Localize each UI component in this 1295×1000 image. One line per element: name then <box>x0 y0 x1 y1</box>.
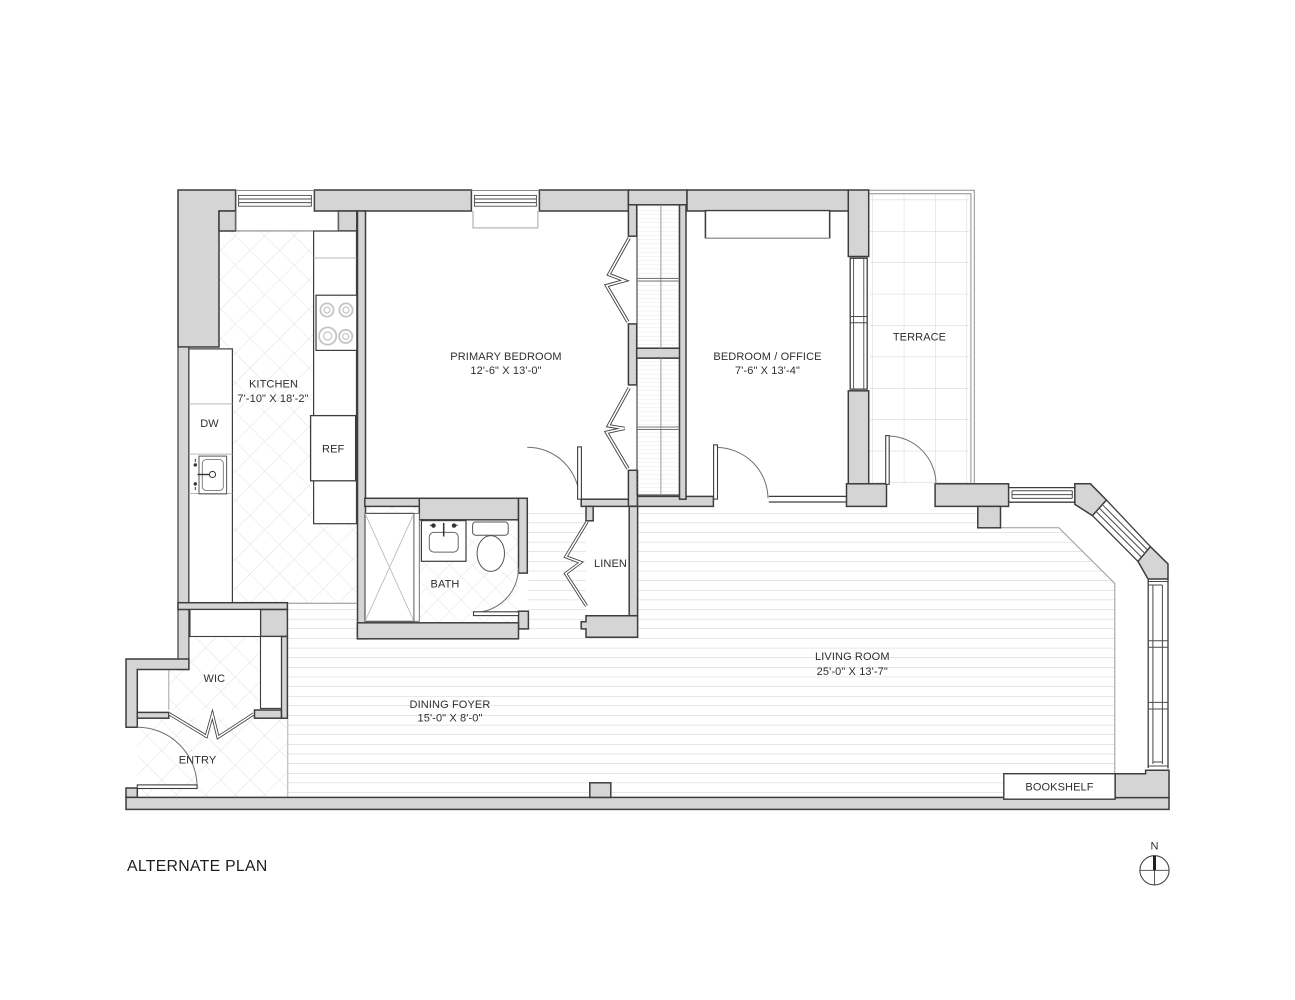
svg-text:ENTRY: ENTRY <box>179 755 217 767</box>
svg-text:N: N <box>1150 841 1158 853</box>
svg-text:7'-10" X 18'-2": 7'-10" X 18'-2" <box>237 393 308 405</box>
svg-text:ALTERNATE PLAN: ALTERNATE PLAN <box>127 858 268 875</box>
svg-text:KITCHEN: KITCHEN <box>249 379 298 391</box>
svg-text:WIC: WIC <box>204 673 226 685</box>
svg-text:DINING FOYER: DINING FOYER <box>410 699 491 711</box>
svg-text:PRIMARY BEDROOM: PRIMARY BEDROOM <box>450 351 561 363</box>
svg-text:LIVING ROOM: LIVING ROOM <box>815 651 890 663</box>
svg-text:LINEN: LINEN <box>594 558 627 570</box>
svg-text:BEDROOM / OFFICE: BEDROOM / OFFICE <box>713 351 821 363</box>
svg-text:15'-0" X 8'-0": 15'-0" X 8'-0" <box>417 712 482 724</box>
svg-text:12'-6" X 13'-0": 12'-6" X 13'-0" <box>470 365 541 377</box>
svg-text:REF: REF <box>322 443 344 455</box>
svg-text:25'-0" X 13'-7": 25'-0" X 13'-7" <box>817 666 888 678</box>
svg-text:BATH: BATH <box>430 578 459 590</box>
svg-text:7'-6" X 13'-4": 7'-6" X 13'-4" <box>735 365 800 377</box>
svg-text:DW: DW <box>200 418 219 430</box>
svg-text:BOOKSHELF: BOOKSHELF <box>1025 782 1093 794</box>
svg-text:TERRACE: TERRACE <box>893 331 946 343</box>
